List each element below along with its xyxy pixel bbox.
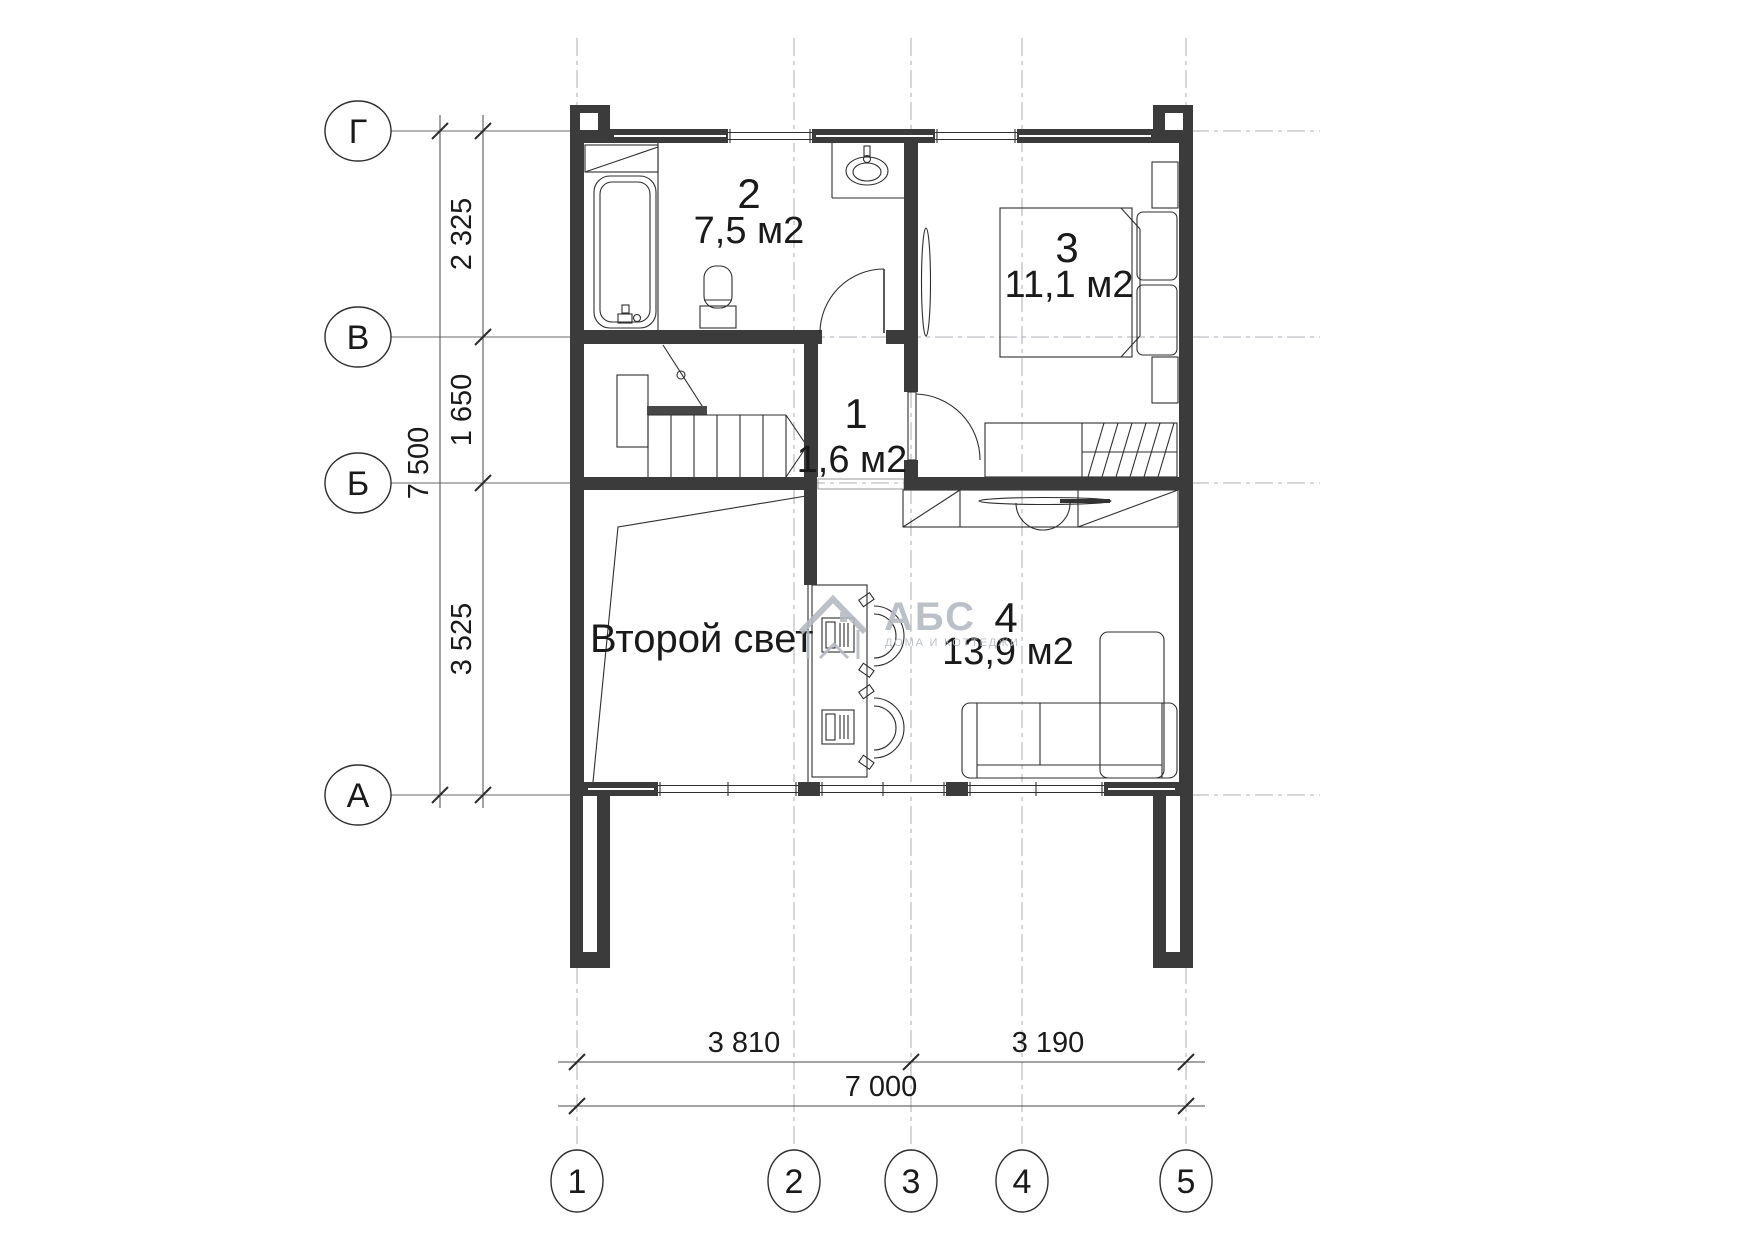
pillow xyxy=(1137,285,1177,355)
dim-left-total: 7 500 xyxy=(403,427,435,500)
wall-exterior-right xyxy=(1179,129,1193,796)
wall-b-left xyxy=(584,477,808,490)
watermark-title: АБС xyxy=(884,595,976,639)
wall-void-pier xyxy=(804,477,817,585)
stair-treads xyxy=(648,415,786,477)
dim-bottom-2: 3 190 xyxy=(1012,1027,1085,1059)
dim-left-3: 3 525 xyxy=(446,603,478,676)
door-bedroom xyxy=(908,392,980,460)
wall-b-right xyxy=(904,477,1179,490)
bedroom-furniture xyxy=(922,162,1179,477)
shelf xyxy=(585,145,658,172)
axis-label-g: Г xyxy=(349,113,367,151)
dimensions-bottom: 3 810 3 190 7 000 xyxy=(558,1027,1205,1114)
washbasin-niche xyxy=(832,143,904,198)
wall-v-right xyxy=(886,330,904,344)
tv-stand-arc xyxy=(1016,503,1070,530)
window-void xyxy=(658,782,798,796)
window-bathroom xyxy=(728,129,812,143)
nightstand xyxy=(1152,162,1178,208)
window-study-left xyxy=(820,782,946,796)
bathtub xyxy=(594,176,656,328)
staircase xyxy=(617,345,807,477)
tv-console xyxy=(903,490,1178,530)
stair-walkline xyxy=(663,345,704,409)
computer xyxy=(822,710,854,744)
window-study-right xyxy=(968,782,1104,796)
toilet xyxy=(700,266,736,328)
porch-wall-left xyxy=(570,796,610,968)
floor-plan-drawing: 2 7,5 м2 3 11,1 м2 1 1,6 м2 4 13,9 м2 Вт… xyxy=(0,0,1755,1241)
wall-exterior-left xyxy=(570,129,584,796)
pillow xyxy=(1137,212,1177,280)
wall-v-left xyxy=(584,330,822,344)
walls xyxy=(570,105,1193,968)
mirror-panel xyxy=(922,228,931,336)
stair-landing-box xyxy=(617,375,648,447)
void-label: Второй свет xyxy=(590,617,813,661)
axis-label-4: 4 xyxy=(1013,1163,1032,1201)
axis-label-b: Б xyxy=(347,465,369,503)
room-hall-area: 1,6 м2 xyxy=(797,439,908,481)
dim-bottom-total: 7 000 xyxy=(845,1071,918,1103)
room-hall-number: 1 xyxy=(844,390,867,437)
dim-left-1: 2 325 xyxy=(446,198,478,271)
axis-label-2: 2 xyxy=(785,1163,804,1201)
watermark-subtitle: ДОМА И КОТТЕДЖИ xyxy=(885,637,1020,649)
dim-bottom-1: 3 810 xyxy=(708,1027,781,1059)
pilaster-top-left xyxy=(570,105,610,143)
wardrobe xyxy=(985,423,1177,477)
axis-label-5: 5 xyxy=(1177,1163,1196,1201)
axis-markers-left: Г В Б А xyxy=(325,101,391,825)
dim-left-2: 1 650 xyxy=(446,374,478,447)
stair-edge-bar xyxy=(647,406,707,415)
room-bathroom-area: 7,5 м2 xyxy=(694,210,805,252)
axis-label-3: 3 xyxy=(902,1163,921,1201)
tv-screen-dark xyxy=(1060,499,1110,503)
window-bedroom xyxy=(935,129,1017,143)
porch-wall-right xyxy=(1153,796,1193,968)
floor-plan-page: 2 7,5 м2 3 11,1 м2 1 1,6 м2 4 13,9 м2 Вт… xyxy=(0,0,1755,1241)
door-bathroom xyxy=(820,269,884,333)
axis-label-v: В xyxy=(347,319,370,357)
room-bedroom-area: 11,1 м2 xyxy=(1005,264,1134,306)
wall-axis3-upper xyxy=(904,143,918,392)
axis-label-a: А xyxy=(347,777,370,815)
axis-label-1: 1 xyxy=(568,1163,587,1201)
office-chair xyxy=(859,685,904,770)
pilaster-top-right xyxy=(1153,105,1193,143)
wardrobe-hatching xyxy=(1088,423,1174,477)
nightstand xyxy=(1152,357,1178,403)
dimensions-left: 2 325 1 650 3 525 7 500 xyxy=(391,115,570,808)
axis-markers-bottom: 1 2 3 4 5 xyxy=(551,1150,1212,1212)
